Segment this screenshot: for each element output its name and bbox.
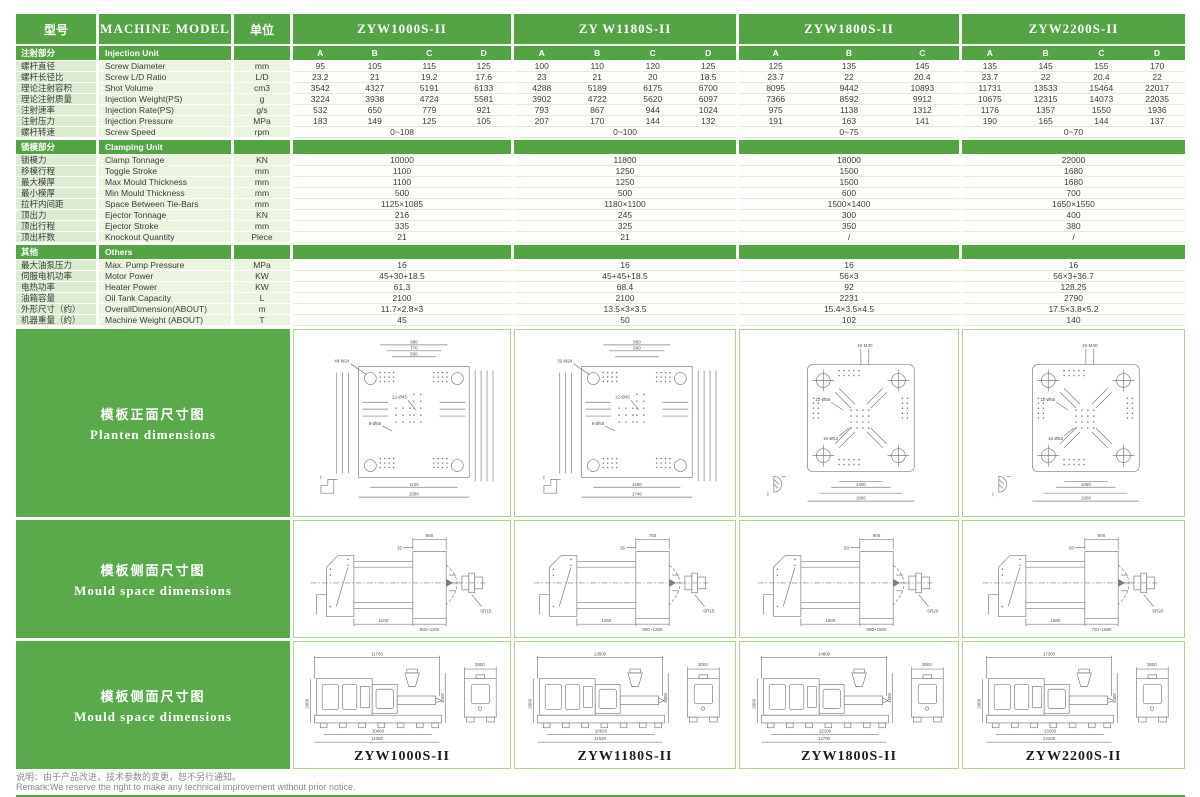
value-cell: / — [739, 232, 959, 243]
value-cell: 0~70 — [962, 127, 1185, 138]
value-cell: 23.72220.422 — [962, 72, 1185, 83]
value-cell: 92 — [739, 282, 959, 293]
specification-table: 型号MACHINE MODEL单位ZYW1000S-IIZY W1180S-II… — [16, 14, 1186, 769]
svg-text:560: 560 — [633, 345, 641, 350]
value: 22 — [812, 72, 885, 82]
drawing-cell: 98077056048-M2412-Ø458-Ø5511251580 — [293, 329, 511, 517]
value: 779 — [402, 105, 457, 115]
value-cell: 2100 — [514, 293, 736, 304]
table-row: 外形尺寸（约）OverallDimension(ABOUT)m11.7×2.8×… — [16, 304, 1186, 315]
value: 20 — [625, 72, 681, 82]
value: 650 — [348, 105, 403, 115]
svg-text:12-Ø55: 12-Ø55 — [1040, 397, 1056, 402]
table-row: 最大油泵压力Max. Pump PressureMPa16161616 — [16, 260, 1186, 271]
row-label-en: Max. Pump Pressure — [99, 260, 231, 271]
svg-text:5200: 5200 — [1111, 692, 1116, 702]
row-label-en: Max Mould Thickness — [99, 177, 231, 188]
value-cell: 245 — [514, 210, 736, 221]
svg-text:770: 770 — [410, 345, 418, 350]
machine-elevation-drawing: 117002600300010400110002800 — [293, 646, 511, 746]
drawing-label-zh: 模板正面尺寸图 — [100, 404, 205, 423]
row-label-zh: 移模行程 — [16, 166, 96, 177]
svg-text:SR15: SR15 — [703, 608, 715, 613]
svg-text:12-Ø55: 12-Ø55 — [815, 397, 831, 402]
value-cell: 500 — [293, 188, 511, 199]
svg-text:2600: 2600 — [752, 698, 757, 708]
drawing-cell: SR20900501500600~1500 — [739, 520, 959, 638]
value-cell: 700 — [962, 188, 1185, 199]
platen-drawing: 40-M3012-Ø5516-Ø5214001600 — [744, 335, 954, 511]
value: 163 — [812, 116, 885, 126]
row-label-zh: 伺服电机功率 — [16, 271, 96, 282]
svg-text:16-Ø52: 16-Ø52 — [823, 436, 839, 441]
value-cell: 1250 — [514, 166, 736, 177]
section-header-en: Injection Unit — [99, 46, 231, 60]
value-cell: 135145155170 — [962, 61, 1185, 72]
value: 170 — [570, 116, 626, 126]
value: 95 — [293, 61, 348, 71]
row-label-zh: 螺杆长径比 — [16, 72, 96, 83]
svg-text:1400: 1400 — [856, 482, 867, 487]
machine-elevation-drawing: 173002600520013200141003800 — [965, 646, 1183, 746]
drawing-label-en: Mould space dimensions — [74, 583, 232, 599]
drawing-cell: SR15680351100500~1100 — [293, 520, 511, 638]
svg-text:8-Ø55: 8-Ø55 — [369, 421, 382, 426]
svg-text:3000: 3000 — [440, 692, 445, 702]
unit-cell: mm — [234, 188, 290, 199]
value-cell: 1650×1550 — [962, 199, 1185, 210]
value: 20.4 — [886, 72, 959, 82]
svg-text:12-Ø45: 12-Ø45 — [392, 394, 408, 399]
value-cell: 18000 — [739, 155, 959, 166]
value-cell: 125135145 — [739, 61, 959, 72]
row-label-zh: 机器重量（约） — [16, 315, 96, 326]
section-header-unit — [234, 140, 290, 154]
row-label-en: Screw Diameter — [99, 61, 231, 72]
svg-text:2600: 2600 — [976, 698, 981, 708]
row-label-en: Ejector Tonnage — [99, 210, 231, 221]
value-cell: 1125×1085 — [293, 199, 511, 210]
row-label-zh: 理论注射容积 — [16, 83, 96, 94]
value: 18.5 — [681, 72, 737, 82]
machine-elevation-drawing: 148002600450012100127003500 — [740, 646, 958, 746]
row-label-en: Clamp Tonnage — [99, 155, 231, 166]
value-cell: 15.4×3.5×4.5 — [739, 304, 959, 315]
drawing-cell: 86056032-M2412-Ø458-Ø5511801740 — [514, 329, 736, 517]
value: 3938 — [348, 94, 403, 104]
value-cell: 10000 — [293, 155, 511, 166]
footer: 说明：由于产品改进，技术参数的变更，恕不另行通知。 Remark:We rese… — [16, 772, 1186, 792]
svg-text:560: 560 — [410, 351, 418, 356]
svg-text:11620: 11620 — [594, 736, 606, 741]
svg-text:10920: 10920 — [595, 728, 608, 733]
row-label-zh: 顶出力 — [16, 210, 96, 221]
row-label-zh: 锁模力 — [16, 155, 96, 166]
value: 867 — [570, 105, 626, 115]
svg-text:48-M24: 48-M24 — [334, 359, 350, 364]
value: 10675 — [962, 94, 1018, 104]
row-label-en: Machine Weight (ABOUT) — [99, 315, 231, 326]
unit-cell: g — [234, 94, 290, 105]
value: 21 — [348, 72, 403, 82]
svg-text:1580: 1580 — [409, 492, 420, 497]
column-header-model-zh: 型号 — [16, 14, 96, 44]
value: 14073 — [1074, 94, 1130, 104]
svg-text:35: 35 — [397, 546, 403, 551]
value: 21 — [570, 72, 626, 82]
value-cell: 1250 — [514, 177, 736, 188]
value: 793 — [514, 105, 570, 115]
row-label-en: Toggle Stroke — [99, 166, 231, 177]
value-cell: 532650779921 — [293, 105, 511, 116]
value-cell: 0~100 — [514, 127, 736, 138]
value: 23.2 — [293, 72, 348, 82]
unit-cell: KW — [234, 282, 290, 293]
value: 3902 — [514, 94, 570, 104]
section-header-machine — [293, 245, 511, 259]
svg-text:900: 900 — [873, 533, 881, 538]
row-label-zh: 注射速率 — [16, 105, 96, 116]
value-cell: 1100 — [293, 166, 511, 177]
drawing-cell: 173002600520013200141003800ZYW2200S-II — [962, 641, 1185, 769]
value-cell: 97511381312 — [739, 105, 959, 116]
unit-cell: Piece — [234, 232, 290, 243]
sub-column-header: C — [625, 46, 681, 60]
value-cell: 350 — [739, 221, 959, 232]
value: 125 — [681, 61, 737, 71]
table-row: 锁模部分Clamping Unit — [16, 138, 1186, 155]
table-row: 型号MACHINE MODEL单位ZYW1000S-IIZY W1180S-II… — [16, 14, 1186, 44]
value-cell: 11731135331546422017 — [962, 83, 1185, 94]
value: 944 — [625, 105, 681, 115]
value: 13533 — [1018, 83, 1074, 93]
value-cell: 190165144137 — [962, 116, 1185, 127]
row-label-en: Knockout Quantity — [99, 232, 231, 243]
value: 23.7 — [739, 72, 812, 82]
value: 6133 — [457, 83, 512, 93]
svg-text:40-M30: 40-M30 — [1082, 343, 1098, 348]
value-cell: 100110120125 — [514, 61, 736, 72]
spec-sheet-page: 型号MACHINE MODEL单位ZYW1000S-IIZY W1180S-II… — [0, 0, 1200, 797]
value-cell: 500 — [514, 188, 736, 199]
svg-text:700~1680: 700~1680 — [1091, 627, 1112, 632]
value: 10893 — [886, 83, 959, 93]
section-header-machine — [514, 140, 736, 154]
value-cell: 128.25 — [962, 282, 1185, 293]
svg-text:900: 900 — [1097, 533, 1105, 538]
unit-cell: m — [234, 304, 290, 315]
value-cell: 3542432751916133 — [293, 83, 511, 94]
svg-text:17300: 17300 — [1042, 651, 1055, 656]
section-header-machine — [293, 140, 511, 154]
value: 135 — [962, 61, 1018, 71]
value-cell: 56×3+36.7 — [962, 271, 1185, 282]
section-header-machine — [739, 140, 959, 154]
value-cell: 13.5×3×3.5 — [514, 304, 736, 315]
table-row: 拉杆内间距Space Between Tie-Barsmm1125×108511… — [16, 199, 1186, 210]
sub-column-header: D — [681, 46, 737, 60]
value: 23 — [514, 72, 570, 82]
value-cell: 380 — [962, 221, 1185, 232]
value: 1024 — [681, 105, 737, 115]
table-row: 螺杆直径Screw Diametermm95105115125100110120… — [16, 61, 1186, 72]
value: 532 — [293, 105, 348, 115]
value-cell: 1176135715501936 — [962, 105, 1185, 116]
value-cell: 45+45+18.5 — [514, 271, 736, 282]
value: 144 — [1074, 116, 1130, 126]
sub-column-header: D — [457, 46, 512, 60]
machine-name-header: ZYW2200S-II — [962, 14, 1185, 44]
svg-text:2600: 2600 — [305, 698, 310, 708]
value: 9442 — [812, 83, 885, 93]
value: 4724 — [402, 94, 457, 104]
unit-cell: KN — [234, 155, 290, 166]
machine-name-header: ZYW1000S-II — [293, 14, 511, 44]
value: 5581 — [457, 94, 512, 104]
svg-text:1600: 1600 — [856, 496, 867, 501]
table-row: 理论注射质量Injection Weight(PS)g3224393847245… — [16, 94, 1186, 105]
unit-cell: mm — [234, 199, 290, 210]
section-header-machine: ABCD — [514, 46, 736, 60]
svg-text:1180: 1180 — [632, 482, 642, 487]
mould-space-drawing: SR15750351250500~1250 — [518, 524, 732, 634]
drawing-label-en: Mould space dimensions — [74, 709, 232, 725]
value: 3224 — [293, 94, 348, 104]
value-cell: 95105115125 — [293, 61, 511, 72]
row-label-en: Oil Tank Capacity — [99, 293, 231, 304]
svg-text:1650: 1650 — [1080, 482, 1091, 487]
value: 12315 — [1018, 94, 1074, 104]
unit-cell: L — [234, 293, 290, 304]
svg-text:11700: 11700 — [371, 651, 383, 656]
svg-text:12100: 12100 — [819, 728, 832, 733]
machine-name-label: ZYW1800S-II — [801, 749, 897, 765]
svg-text:1740: 1740 — [632, 492, 643, 497]
value-cell: 1680 — [962, 166, 1185, 177]
value-cell: 140 — [962, 315, 1185, 326]
svg-text:980: 980 — [410, 339, 418, 344]
svg-text:40-M30: 40-M30 — [857, 343, 873, 348]
value: 9912 — [886, 94, 959, 104]
value-cell: 68.4 — [514, 282, 736, 293]
svg-text:11000: 11000 — [371, 736, 383, 741]
svg-text:1900: 1900 — [1080, 496, 1091, 501]
section-header-en: Others — [99, 245, 231, 259]
row-label-zh: 外形尺寸（约） — [16, 304, 96, 315]
sub-column-header: C — [886, 46, 959, 60]
value-cell: 11.7×2.8×3 — [293, 304, 511, 315]
value-cell: 0~108 — [293, 127, 511, 138]
sub-column-header: A — [962, 46, 1018, 60]
drawing-label-zh: 模板侧面尺寸图 — [100, 560, 205, 579]
row-label-zh: 最小模厚 — [16, 188, 96, 199]
value: 4327 — [348, 83, 403, 93]
value: 155 — [1074, 61, 1130, 71]
table-row: 顶出力Ejector TonnageKN216245300400 — [16, 210, 1186, 221]
value: 110 — [570, 61, 626, 71]
platen-drawing: 40-M3012-Ø5516-Ø5216501900 — [969, 335, 1179, 511]
value-cell: 102 — [739, 315, 959, 326]
svg-text:1125: 1125 — [409, 482, 419, 487]
table-row: 模板侧面尺寸图Mould space dimensions11700260030… — [16, 641, 1186, 769]
value-cell: 600 — [739, 188, 959, 199]
platen-drawing: 86056032-M2412-Ø458-Ø5511801740 — [520, 335, 730, 511]
table-row: 注射压力Injection PressureMPa183149125105207… — [16, 116, 1186, 127]
svg-text:680: 680 — [426, 533, 434, 538]
value-cell: 3902472256206097 — [514, 94, 736, 105]
unit-cell: mm — [234, 61, 290, 72]
svg-text:2800: 2800 — [475, 662, 485, 667]
unit-cell: T — [234, 315, 290, 326]
row-label-en: Motor Power — [99, 271, 231, 282]
mould-space-drawing: SR20900501500600~1500 — [742, 524, 956, 634]
section-header-machine — [962, 245, 1185, 259]
value: 135 — [812, 61, 885, 71]
value: 11731 — [962, 83, 1018, 93]
svg-text:10400: 10400 — [372, 728, 385, 733]
table-row: 理论注射容积Shot Volumecm335424327519161334288… — [16, 83, 1186, 94]
row-label-en: Min Mould Thickness — [99, 188, 231, 199]
value-cell: / — [962, 232, 1185, 243]
column-header-machine-model: MACHINE MODEL — [99, 14, 231, 44]
unit-cell: cm3 — [234, 83, 290, 94]
value-cell: 2100 — [293, 293, 511, 304]
unit-cell: mm — [234, 221, 290, 232]
value: 6700 — [681, 83, 737, 93]
value-cell: 23.72220.4 — [739, 72, 959, 83]
value: 5189 — [570, 83, 626, 93]
svg-text:13200: 13200 — [1043, 728, 1056, 733]
svg-text:3500: 3500 — [922, 662, 932, 667]
value-cell: 50 — [514, 315, 736, 326]
value: 1176 — [962, 105, 1018, 115]
value-cell: 736685929912 — [739, 94, 959, 105]
svg-text:1680: 1680 — [1050, 618, 1061, 623]
section-header-zh: 锁模部分 — [16, 140, 96, 154]
row-label-en: Screw L/D Ratio — [99, 72, 231, 83]
sub-column-header: C — [1074, 46, 1130, 60]
value-cell: 2790 — [962, 293, 1185, 304]
value: 144 — [625, 116, 681, 126]
value: 8592 — [812, 94, 885, 104]
table-row: 油箱容量Oil Tank CapacityL2100210022312790 — [16, 293, 1186, 304]
sub-column-header: B — [1018, 46, 1074, 60]
value-cell: 16 — [293, 260, 511, 271]
value: 4722 — [570, 94, 626, 104]
drawing-row-label: 模板正面尺寸图Planten dimensions — [16, 329, 290, 517]
row-label-en: Injection Pressure — [99, 116, 231, 127]
table-row: 注射速率Injection Rate(PS)g/s532650779921793… — [16, 105, 1186, 116]
row-label-zh: 油箱容量 — [16, 293, 96, 304]
value: 207 — [514, 116, 570, 126]
svg-text:860: 860 — [633, 339, 641, 344]
value-cell: 45 — [293, 315, 511, 326]
table-row: 模板正面尺寸图Planten dimensions98077056048-M24… — [16, 329, 1186, 517]
value: 3542 — [293, 83, 348, 93]
table-row: 移模行程Toggle Strokemm1100125015001680 — [16, 166, 1186, 177]
svg-text:1250: 1250 — [601, 618, 612, 623]
machine-name-label: ZYW1180S-II — [577, 749, 672, 765]
svg-text:SR20: SR20 — [1152, 608, 1164, 613]
unit-cell: L/D — [234, 72, 290, 83]
svg-text:12-Ø45: 12-Ø45 — [615, 394, 631, 399]
svg-text:14100: 14100 — [1042, 736, 1055, 741]
unit-cell: KN — [234, 210, 290, 221]
value-cell: 191163141 — [739, 116, 959, 127]
value-cell: 23.22119.217.6 — [293, 72, 511, 83]
unit-cell: mm — [234, 177, 290, 188]
footer-note-zh: 说明：由于产品改进，技术参数的变更，恕不另行通知。 — [16, 772, 1186, 782]
value-cell: 17.5×3.8×5.2 — [962, 304, 1185, 315]
row-label-en: OverallDimension(ABOUT) — [99, 304, 231, 315]
svg-text:SR20: SR20 — [927, 608, 939, 613]
value: 1357 — [1018, 105, 1074, 115]
value-cell: 183149125105 — [293, 116, 511, 127]
value-cell: 325 — [514, 221, 736, 232]
value-cell: 16 — [739, 260, 959, 271]
footer-remark-en: Remark:We reserve the right to make any … — [16, 782, 1186, 792]
value: 22017 — [1129, 83, 1185, 93]
value: 23.7 — [962, 72, 1018, 82]
value-cell: 2231 — [739, 293, 959, 304]
value: 191 — [739, 116, 812, 126]
table-row: 伺服电机功率Motor PowerKW45+30+18.545+45+18.55… — [16, 271, 1186, 282]
svg-text:3800: 3800 — [1146, 662, 1156, 667]
table-row: 其他Others — [16, 243, 1186, 260]
sub-column-header: B — [570, 46, 626, 60]
svg-text:2600: 2600 — [528, 698, 533, 708]
sub-column-header: B — [348, 46, 403, 60]
row-label-en: Shot Volume — [99, 83, 231, 94]
value-cell: 22000 — [962, 155, 1185, 166]
svg-text:500~1250: 500~1250 — [642, 627, 663, 632]
value-cell: 1680 — [962, 177, 1185, 188]
section-header-machine — [962, 140, 1185, 154]
drawing-row-label: 模板侧面尺寸图Mould space dimensions — [16, 641, 290, 769]
svg-text:4500: 4500 — [887, 692, 892, 702]
value-cell: 3224393847245581 — [293, 94, 511, 105]
value-cell: 1100 — [293, 177, 511, 188]
section-header-unit — [234, 245, 290, 259]
value-cell: 61.3 — [293, 282, 511, 293]
value: 4288 — [514, 83, 570, 93]
value: 132 — [681, 116, 737, 126]
value: 17.6 — [457, 72, 512, 82]
value: 120 — [625, 61, 681, 71]
row-label-en: Space Between Tie-Bars — [99, 199, 231, 210]
section-header-machine: ABCD — [293, 46, 511, 60]
value-cell: 216 — [293, 210, 511, 221]
unit-cell: rpm — [234, 127, 290, 138]
value-cell: 1500 — [739, 177, 959, 188]
value: 7366 — [739, 94, 812, 104]
table-row: 模板侧面尺寸图Mould space dimensionsSR156803511… — [16, 520, 1186, 638]
row-label-en: Injection Weight(PS) — [99, 94, 231, 105]
drawing-cell: SR20900501680700~1680 — [962, 520, 1185, 638]
value-cell: 400 — [962, 210, 1185, 221]
sub-column-header: D — [1129, 46, 1185, 60]
row-label-zh: 注射压力 — [16, 116, 96, 127]
value: 125 — [402, 116, 457, 126]
column-header-unit: 单位 — [234, 14, 290, 44]
value: 105 — [348, 61, 403, 71]
table-row: 螺杆转速Screw Speedrpm0~1080~1000~750~70 — [16, 127, 1186, 138]
value: 975 — [739, 105, 812, 115]
value: 5620 — [625, 94, 681, 104]
row-label-zh: 最大油泵压力 — [16, 260, 96, 271]
value: 22 — [1018, 72, 1074, 82]
table-row: 最大模厚Max Mould Thicknessmm110012501500168… — [16, 177, 1186, 188]
